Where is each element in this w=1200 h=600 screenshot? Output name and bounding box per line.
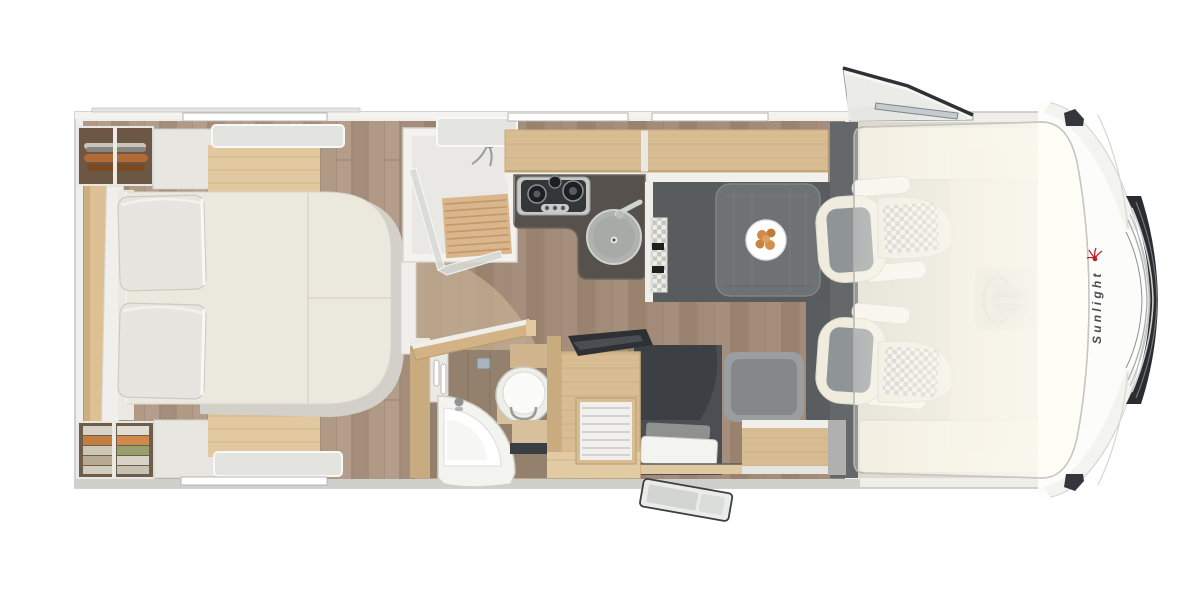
svg-text:Sunlight: Sunlight (1090, 270, 1104, 344)
